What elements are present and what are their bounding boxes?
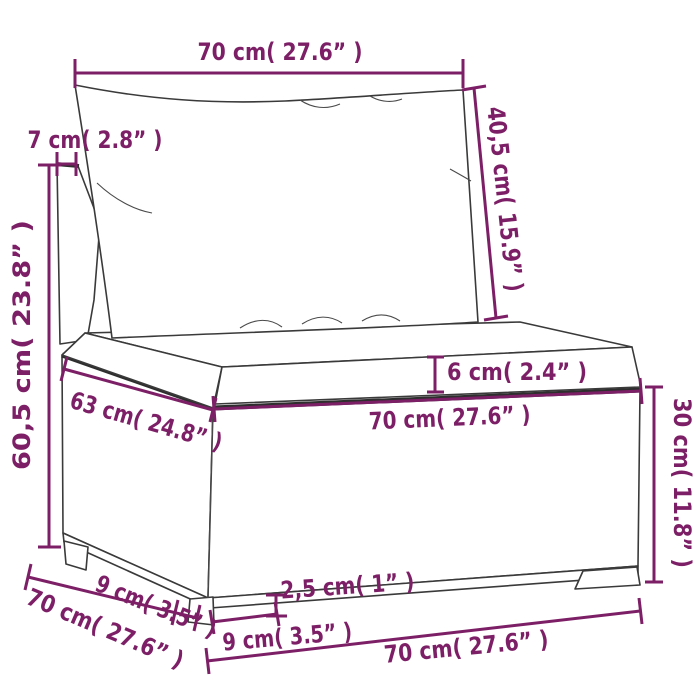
- back-pillow: [75, 85, 478, 338]
- dim-base-height-label: 30 cm( 11.8” ): [668, 398, 696, 568]
- dim-backrest-depth-label: 7 cm( 2.8” ): [28, 126, 163, 154]
- tick: [639, 598, 642, 624]
- tick: [462, 86, 486, 90]
- foot-right: [575, 567, 640, 589]
- dimension-diagram: 70 cm( 27.6” ) 7 cm( 2.8” ) 60,5 cm( 23.…: [0, 0, 700, 700]
- dim-total-height-label: 60,5 cm( 23.8” ): [8, 220, 36, 470]
- dim-top-width: 70 cm( 27.6” ): [75, 38, 463, 88]
- dim-front-foot-width: 9 cm( 3.5” ): [210, 602, 353, 657]
- tick: [484, 316, 508, 320]
- back-pillow-body: [75, 85, 478, 338]
- dim-total-height: 60,5 cm( 23.8” ): [8, 165, 61, 547]
- dim-cushion-thickness-label: 6 cm( 2.4” ): [447, 358, 587, 386]
- dim-top-width-label: 70 cm( 27.6” ): [198, 38, 363, 66]
- tick: [640, 378, 642, 404]
- dim-backrest-height-label: 40,5 cm( 15.9” ): [481, 105, 528, 293]
- sofa-line-art: [56, 85, 642, 625]
- tick: [206, 648, 209, 674]
- dimension-diagram-canvas: 70 cm( 27.6” ) 7 cm( 2.8” ) 60,5 cm( 23.…: [0, 0, 700, 700]
- foot-back-left: [64, 541, 88, 570]
- dim-base-height: 30 cm( 11.8” ): [645, 387, 696, 582]
